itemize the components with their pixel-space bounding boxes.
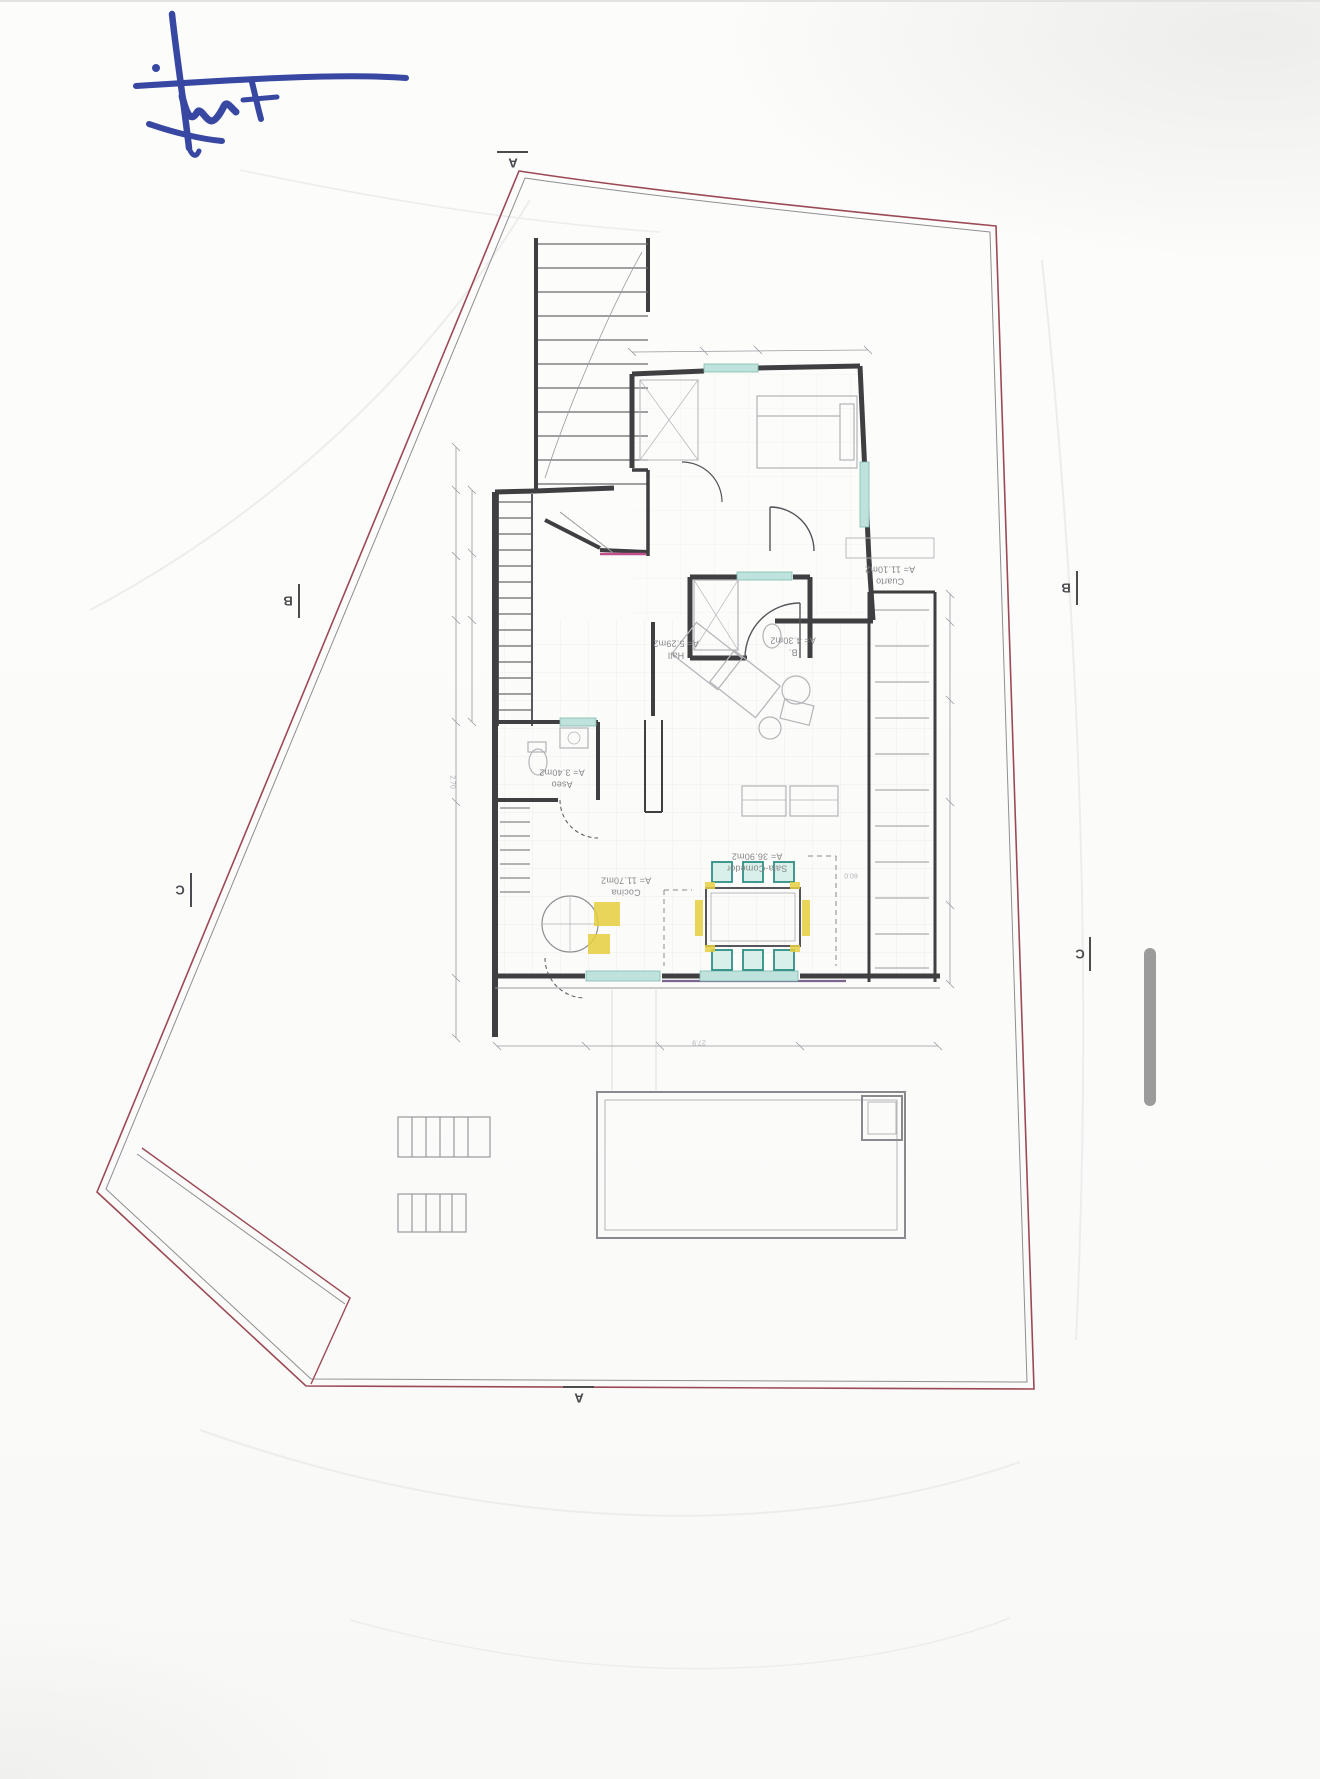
section-marker-b-left: B — [283, 594, 292, 609]
room-label-sala-comedor: Sala-Comedor A= 36.90m2 — [727, 850, 787, 873]
room-label-cuarto: Cuarto A= 11.10m2 — [865, 563, 915, 586]
scanned-page: Cuarto A= 11.10m2 Hall A= 5.29m2 B. A= 4… — [0, 0, 1320, 1779]
room-area: A= 5.29m2 — [653, 639, 699, 649]
room-label-bano: B. A= 4.30m2 — [770, 634, 816, 657]
dimension-value: 2.70 — [449, 775, 456, 789]
room-name: B. — [789, 648, 798, 658]
room-name: Sala-Comedor — [727, 864, 787, 874]
dimension-value: 27.9 — [692, 1039, 706, 1046]
room-area: A= 11.10m2 — [865, 565, 915, 575]
section-marker-b-right: B — [1061, 581, 1070, 596]
section-marker-c-right: C — [1075, 947, 1084, 962]
room-area: A= 36.90m2 — [732, 852, 783, 862]
section-marker-a-top: A — [508, 156, 517, 171]
floor-plan-drawing — [0, 0, 1320, 1779]
handwritten-signature — [136, 14, 406, 155]
room-label-hall: Hall A= 5.29m2 — [653, 637, 699, 660]
room-name: Cuarto — [876, 577, 904, 587]
scrollbar-thumb[interactable] — [1144, 948, 1156, 1106]
pool — [597, 1092, 905, 1238]
section-marker-c-left: C — [175, 883, 184, 898]
room-label-aseo: Aseo A= 3.40m2 — [539, 766, 585, 789]
section-marker-a-bottom: A — [574, 1391, 583, 1406]
room-name: Cocina — [611, 888, 640, 898]
room-area: A= 11.70m2 — [601, 876, 651, 886]
sun-loungers — [398, 1117, 490, 1232]
room-name: Hall — [668, 651, 684, 661]
floor-grid — [497, 374, 937, 976]
dimension-value: 60.0 — [844, 872, 858, 879]
room-name: Aseo — [551, 780, 572, 790]
room-label-cocina: Cocina A= 11.70m2 — [601, 874, 651, 897]
room-area: A= 4.30m2 — [770, 636, 816, 646]
room-area: A= 3.40m2 — [539, 768, 585, 778]
